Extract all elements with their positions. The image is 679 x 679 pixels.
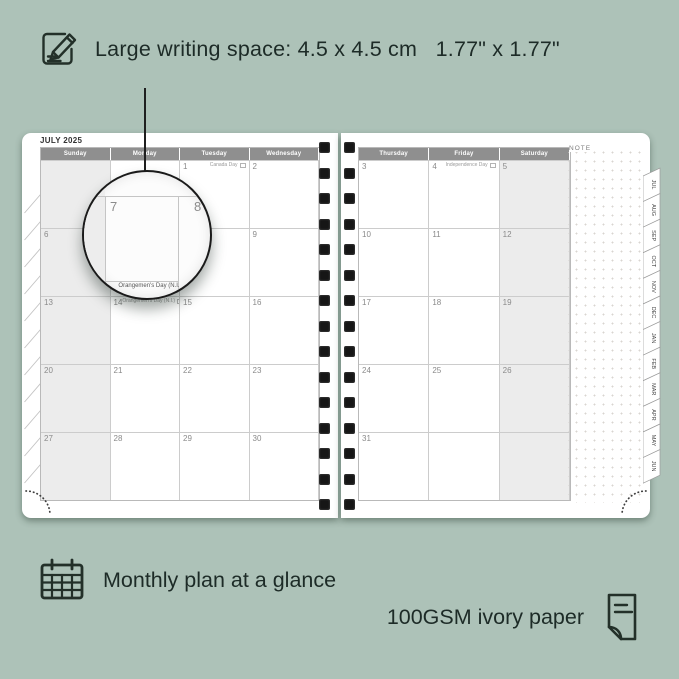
date-number: 4 [432, 163, 436, 171]
binding-hole [344, 244, 355, 255]
date-number: 23 [253, 367, 262, 375]
calendar-cell [500, 432, 570, 500]
svg-text:APR: APR [650, 409, 656, 420]
calendar-cell: 5 [500, 160, 570, 228]
date-number: 20 [44, 367, 53, 375]
top-annotation-text: Large writing space: 4.5 x 4.5 cm 1.77" … [95, 37, 560, 62]
binding-hole [319, 372, 330, 383]
calendar-cell: 25 [429, 364, 499, 432]
binding-hole [344, 397, 355, 408]
planner-right-page: Thursday Friday Saturday 34Independence … [341, 133, 650, 518]
top-annotation: Large writing space: 4.5 x 4.5 cm 1.77" … [36, 26, 560, 72]
date-number: 12 [503, 231, 512, 239]
date-number: 18 [432, 299, 441, 307]
binding-hole [344, 372, 355, 383]
date-number: 11 [432, 231, 440, 239]
date-number: 14 [114, 299, 123, 307]
day-header-sunday: Sunday [41, 148, 111, 160]
date-number: 16 [253, 299, 262, 307]
calendar-cell: 10 [359, 228, 429, 296]
binding-hole [319, 499, 330, 510]
date-number: 2 [253, 163, 257, 171]
month-tabs: JULAUGSEPOCTNOVDECJANFEBMARAPRMAYJUN [643, 167, 661, 485]
binding-hole [319, 244, 330, 255]
calendar-cell: 18 [429, 296, 499, 364]
svg-text:MAY: MAY [650, 435, 656, 447]
magnified-weekend-column [84, 172, 105, 298]
binding-hole [344, 295, 355, 306]
day-header-thursday: Thursday [359, 148, 429, 160]
svg-text:JUL: JUL [650, 180, 656, 190]
binding-hole [344, 346, 355, 357]
date-number: 13 [44, 299, 53, 307]
binding-hole [344, 193, 355, 204]
date-number: 28 [114, 435, 123, 443]
date-number: 27 [44, 435, 53, 443]
date-number: 24 [362, 367, 371, 375]
binding-hole [319, 168, 330, 179]
binding-hole [319, 193, 330, 204]
paper-sheet-icon [599, 591, 643, 643]
calendar-cell: 2 [250, 160, 320, 228]
calendar-cell: 29 [180, 432, 250, 500]
date-number: 19 [503, 299, 512, 307]
date-number: 26 [503, 367, 512, 375]
date-number: 31 [362, 435, 371, 443]
calendar-cell: 13 [41, 296, 111, 364]
bottom-right-annotation: 100GSM ivory paper [387, 591, 643, 643]
magnified-date: 8 [194, 199, 201, 214]
spiral-binding-holes-right [344, 142, 355, 510]
magnified-grid-line [105, 281, 178, 282]
binding-hole [319, 321, 330, 332]
binding-hole [319, 142, 330, 153]
calendar-grid-icon [38, 556, 86, 604]
calendar-cell: 22 [180, 364, 250, 432]
date-number: 15 [183, 299, 192, 307]
date-number: 9 [253, 231, 257, 239]
binding-hole [344, 499, 355, 510]
callout-connector-line [144, 88, 146, 174]
calendar-cell [429, 432, 499, 500]
date-number: 6 [44, 231, 48, 239]
date-number: 25 [432, 367, 441, 375]
holiday-label: Canada Day [210, 163, 246, 169]
spiral-binding-holes-left [319, 142, 330, 510]
calendar-cell: 16 [250, 296, 320, 364]
svg-text:FEB: FEB [650, 358, 656, 369]
calendar-cell: 17 [359, 296, 429, 364]
binding-hole [344, 423, 355, 434]
date-number: 30 [253, 435, 262, 443]
day-header-tuesday: Tuesday [180, 148, 250, 160]
calendar-cell: 20 [41, 364, 111, 432]
svg-text:DEC: DEC [650, 307, 656, 319]
month-title: JULY 2025 [40, 136, 82, 145]
day-header-friday: Friday [429, 148, 499, 160]
calendar-cell: 9 [250, 228, 320, 296]
date-number: 22 [183, 367, 192, 375]
svg-text:MAR: MAR [650, 383, 656, 395]
date-number: 1 [183, 163, 187, 171]
svg-text:AUG: AUG [650, 204, 656, 216]
binding-hole [319, 270, 330, 281]
svg-text:JUN: JUN [650, 461, 656, 472]
binding-hole [344, 321, 355, 332]
calendar-cell: 11 [429, 228, 499, 296]
bottom-left-annotation-text: Monthly plan at a glance [103, 568, 336, 593]
date-number: 17 [362, 299, 371, 307]
calendar-cell: 4Independence Day [429, 160, 499, 228]
magnified-date: 7 [110, 199, 117, 214]
calendar-grid-right: Thursday Friday Saturday 34Independence … [358, 147, 571, 501]
note-label: NOTE [569, 145, 593, 152]
binding-hole [344, 270, 355, 281]
binding-hole [319, 219, 330, 230]
date-number: 29 [183, 435, 192, 443]
binding-hole [319, 423, 330, 434]
flag-icon [240, 163, 246, 168]
svg-text:SEP: SEP [650, 230, 656, 241]
svg-text:NOV: NOV [650, 281, 656, 293]
binding-hole [319, 397, 330, 408]
pencil-note-icon [36, 26, 82, 72]
day-header-wednesday: Wednesday [250, 148, 320, 160]
corner-perforation-arc [618, 487, 648, 517]
corner-perforation-arc [24, 487, 54, 517]
magnified-holiday-label: Orangemen's Day (N.I. [92, 283, 206, 289]
binding-hole [319, 474, 330, 485]
magnifier-circle: 7 8 Orangemen's Day (N.I. [82, 170, 212, 300]
date-number: 21 [114, 367, 123, 375]
note-dot-grid-area: NOTE [568, 145, 645, 503]
calendar-cell: 24 [359, 364, 429, 432]
calendar-cell: 3 [359, 160, 429, 228]
flag-icon [490, 163, 496, 168]
calendar-cell: 23 [250, 364, 320, 432]
day-header-saturday: Saturday [500, 148, 570, 160]
binding-hole [344, 142, 355, 153]
calendar-cell: 21 [111, 364, 181, 432]
calendar-cell: 31 [359, 432, 429, 500]
binding-hole [344, 168, 355, 179]
calendar-cell: 19 [500, 296, 570, 364]
date-number: 5 [503, 163, 507, 171]
calendar-cell: 14Orangemen's Day (N.I.) [111, 296, 181, 364]
binding-hole [319, 295, 330, 306]
binding-hole [344, 219, 355, 230]
calendar-cell: 26 [500, 364, 570, 432]
binding-hole [319, 448, 330, 459]
date-number: 3 [362, 163, 366, 171]
svg-text:JAN: JAN [650, 333, 656, 343]
calendar-cell: 28 [111, 432, 181, 500]
calendar-cell: 12 [500, 228, 570, 296]
calendar-cell: 15 [180, 296, 250, 364]
calendar-cell: 30 [250, 432, 320, 500]
date-number: 10 [362, 231, 371, 239]
binding-hole [344, 448, 355, 459]
bottom-right-annotation-text: 100GSM ivory paper [387, 605, 584, 630]
bottom-left-annotation: Monthly plan at a glance [38, 556, 336, 604]
svg-text:OCT: OCT [650, 255, 656, 267]
binding-hole [319, 346, 330, 357]
magnified-grid-line [84, 196, 210, 197]
holiday-label: Independence Day [446, 163, 496, 169]
binding-hole [344, 474, 355, 485]
